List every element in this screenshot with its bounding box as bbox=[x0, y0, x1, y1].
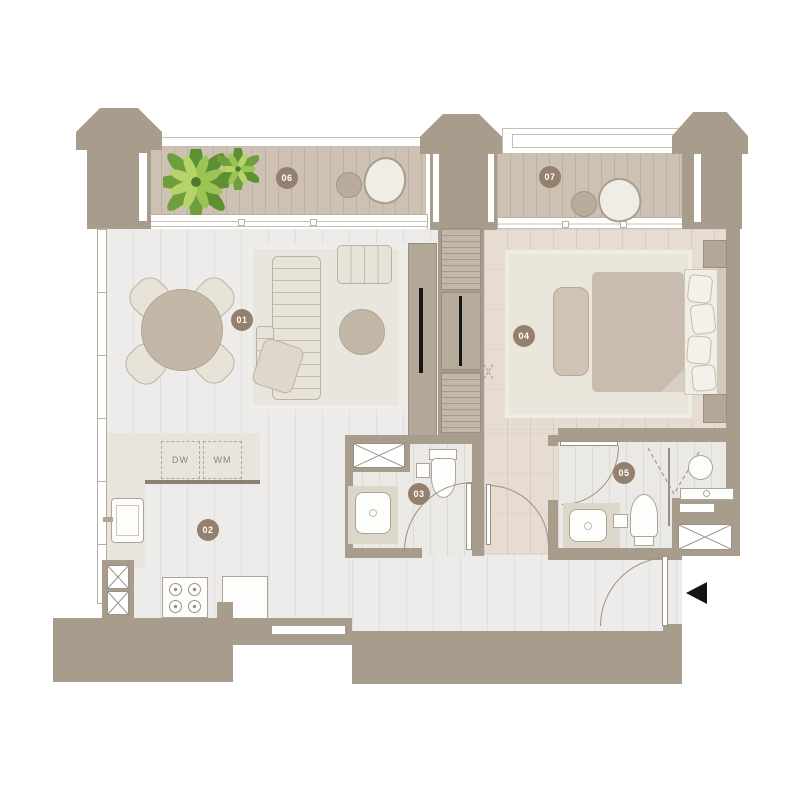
pillar-top-left-roof bbox=[76, 108, 162, 150]
kitchen-sink-inner bbox=[116, 505, 139, 536]
pillar-top-middle-roof bbox=[420, 114, 502, 154]
balcony-06-railing bbox=[148, 137, 426, 147]
burner bbox=[169, 600, 182, 613]
room-badge-02: 02 bbox=[197, 519, 219, 541]
toilet-base bbox=[634, 536, 654, 546]
wall-bottom-step bbox=[217, 602, 233, 618]
nightstand bbox=[703, 394, 727, 423]
service-shaft bbox=[107, 565, 129, 589]
dining-table bbox=[141, 289, 223, 371]
wall-bedroom-right bbox=[726, 229, 740, 435]
wall-window-slot bbox=[272, 626, 345, 634]
door-leaf-bath03[interactable] bbox=[466, 483, 472, 550]
pillar-window-slot bbox=[488, 154, 494, 222]
wall-corridor-bath05-stub bbox=[548, 435, 558, 446]
coffee-table bbox=[339, 309, 385, 355]
bed-mattress bbox=[592, 272, 684, 392]
nightstand bbox=[703, 240, 727, 268]
wall-bedroom-bottom bbox=[558, 428, 740, 442]
pillar-top-right-roof bbox=[672, 112, 748, 154]
shower-head bbox=[688, 455, 713, 480]
pillar-top-right-body bbox=[682, 150, 742, 229]
bidet-shelf bbox=[416, 463, 430, 478]
door-leaf-bedroom-corridor[interactable] bbox=[486, 484, 491, 545]
window-mullion bbox=[562, 221, 569, 228]
dishwasher: DW bbox=[161, 441, 200, 479]
washing-machine: WM bbox=[203, 441, 242, 479]
wall-bottom-left bbox=[53, 618, 233, 682]
wardrobe-hanging-section bbox=[441, 228, 481, 290]
loveseat bbox=[337, 245, 392, 284]
pillow bbox=[687, 274, 714, 304]
room-badge-05: 05 bbox=[613, 462, 635, 484]
sink-drain bbox=[584, 522, 592, 530]
service-shaft bbox=[353, 443, 405, 468]
floor-plan: DW WM bbox=[0, 0, 800, 800]
kitchen-counter-edge bbox=[145, 480, 260, 484]
wall-bottom-right bbox=[352, 631, 682, 684]
burner bbox=[169, 583, 182, 596]
entrance-arrow-icon bbox=[686, 582, 707, 604]
service-shaft bbox=[107, 591, 129, 615]
burner bbox=[188, 583, 201, 596]
pillar-window-slot bbox=[139, 153, 147, 221]
shower-control bbox=[703, 490, 710, 497]
wall-bath03-right bbox=[472, 435, 484, 556]
niche-slot bbox=[680, 504, 714, 512]
pillar-window-slot bbox=[433, 154, 439, 222]
bidet-shelf bbox=[613, 514, 628, 528]
bed-pillow-zone bbox=[684, 269, 718, 395]
pillar-top-middle-body bbox=[430, 149, 497, 230]
sink-drain bbox=[369, 509, 377, 517]
entry-door-leaf[interactable] bbox=[662, 556, 668, 626]
balcony-07-railing-inner bbox=[512, 134, 680, 148]
pillow bbox=[691, 364, 717, 392]
balcony-side-table bbox=[571, 191, 597, 217]
room-badge-03: 03 bbox=[408, 483, 430, 505]
room-badge-04: 04 bbox=[513, 325, 535, 347]
dishwasher-label: DW bbox=[172, 455, 189, 465]
wardrobe-mirror bbox=[459, 296, 462, 366]
stove bbox=[162, 577, 208, 618]
window-mullion bbox=[238, 219, 245, 226]
room-badge-01: 01 bbox=[231, 309, 253, 331]
potted-plant bbox=[217, 148, 259, 190]
tv-screen bbox=[419, 288, 423, 373]
washing-machine-label: WM bbox=[214, 455, 232, 465]
room-badge-07: 07 bbox=[539, 166, 561, 188]
pillow bbox=[689, 303, 716, 336]
room-badge-06: 06 bbox=[276, 167, 298, 189]
wardrobe-hanging-section bbox=[441, 372, 481, 433]
balcony-side-table bbox=[336, 172, 362, 198]
service-shaft bbox=[678, 524, 732, 550]
headboard bbox=[718, 266, 726, 398]
door-leaf-bath05[interactable] bbox=[560, 441, 618, 446]
kitchen-faucet bbox=[103, 517, 113, 522]
burner bbox=[188, 600, 201, 613]
window-wall-left bbox=[97, 228, 107, 604]
window-mullion bbox=[310, 219, 317, 226]
bed-bench bbox=[553, 287, 589, 376]
pillar-window-slot bbox=[694, 154, 701, 222]
pillow bbox=[686, 335, 712, 365]
